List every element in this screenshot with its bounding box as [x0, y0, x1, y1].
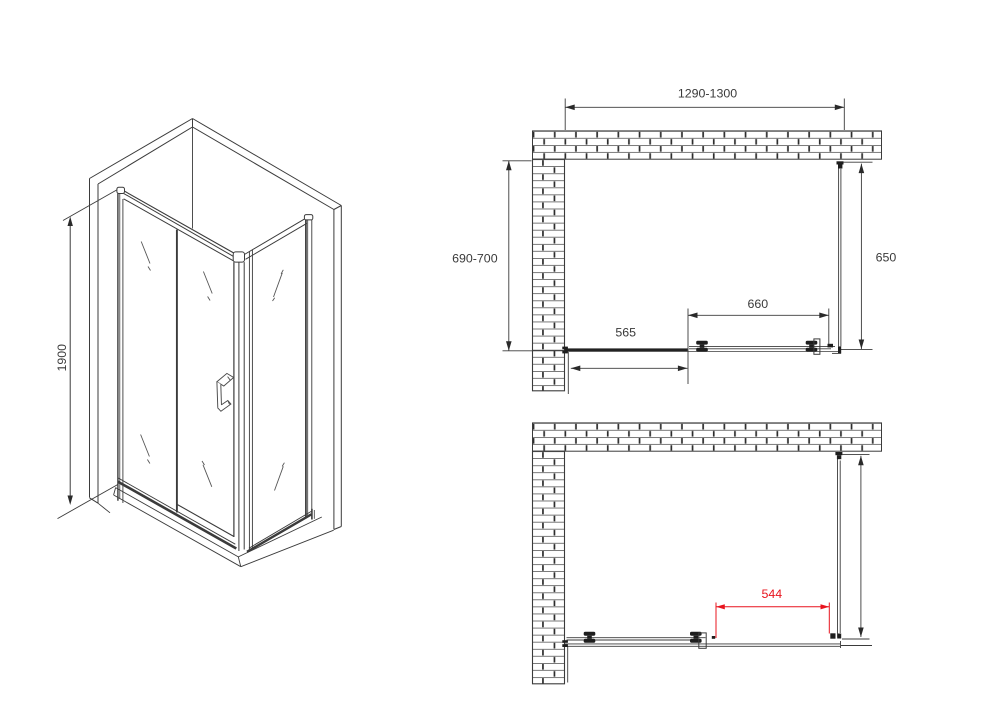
svg-text:1900: 1900: [55, 344, 69, 372]
svg-text:544: 544: [761, 587, 782, 601]
svg-text:660: 660: [747, 297, 768, 311]
svg-text:650: 650: [876, 250, 897, 264]
svg-text:1290-1300: 1290-1300: [678, 87, 737, 101]
svg-text:565: 565: [615, 325, 636, 339]
svg-text:690-700: 690-700: [452, 251, 498, 265]
